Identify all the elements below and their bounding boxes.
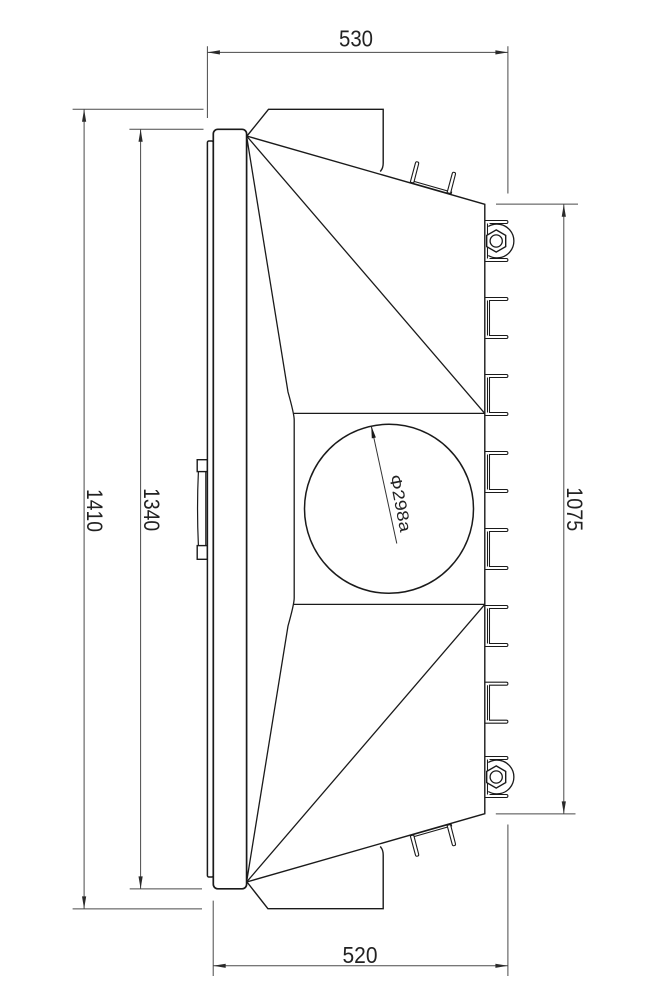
svg-text:530: 530 [339, 26, 373, 52]
svg-text:1075: 1075 [562, 487, 587, 531]
svg-text:520: 520 [343, 942, 378, 968]
svg-text:1340: 1340 [139, 488, 164, 531]
svg-text:1410: 1410 [82, 489, 107, 532]
